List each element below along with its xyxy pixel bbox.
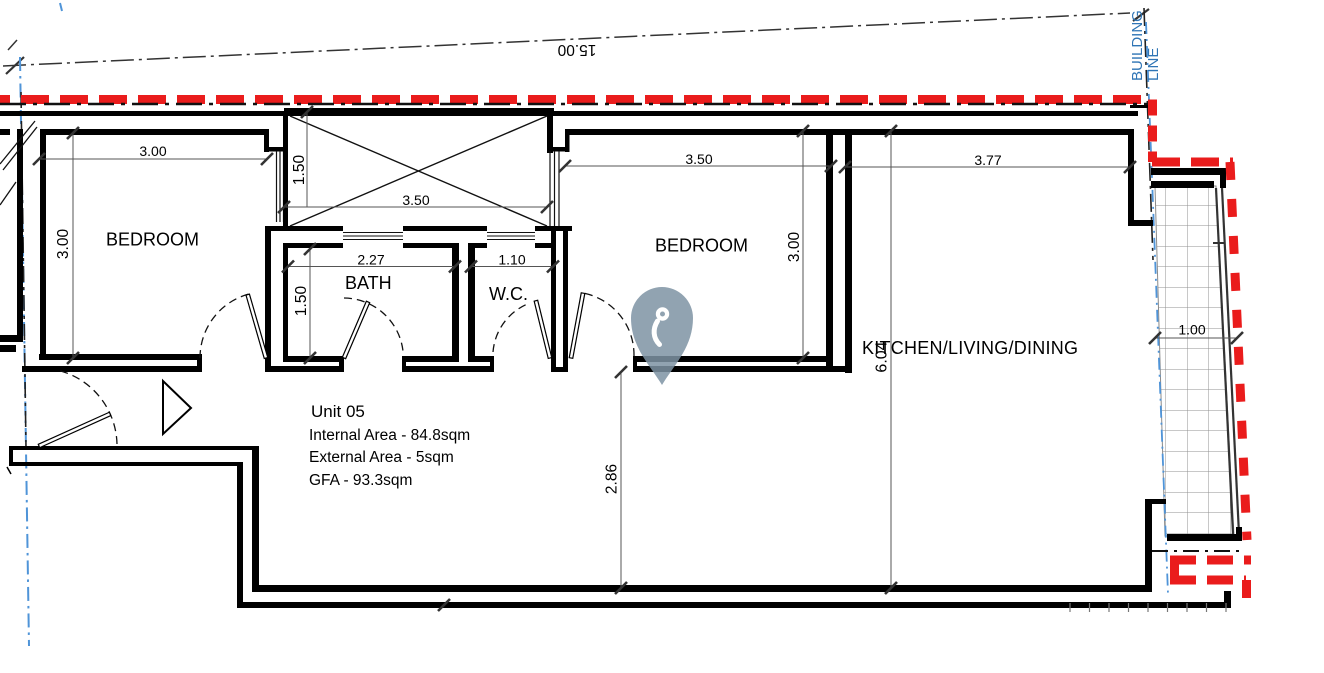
svg-text:6.04: 6.04 (874, 341, 891, 372)
svg-text:3.00: 3.00 (786, 232, 803, 263)
svg-text:3.77: 3.77 (974, 152, 1001, 168)
svg-text:1.10: 1.10 (498, 252, 525, 268)
svg-text:1.50: 1.50 (291, 155, 308, 186)
svg-text:LINE: LINE (1145, 48, 1162, 81)
svg-text:BUILDING: BUILDING (1129, 10, 1146, 81)
svg-text:3.00: 3.00 (139, 143, 166, 159)
svg-text:2.86: 2.86 (604, 464, 621, 494)
svg-text:3.50: 3.50 (402, 192, 429, 208)
svg-text:BEDROOM: BEDROOM (106, 230, 199, 250)
svg-text:Unit 05: Unit 05 (311, 402, 365, 421)
svg-text:External Area - 5sqm: External Area - 5sqm (309, 449, 454, 466)
svg-text:2.27: 2.27 (357, 252, 384, 268)
svg-text:BATH: BATH (345, 273, 392, 293)
svg-text:Internal Area - 84.8sqm: Internal Area - 84.8sqm (309, 427, 470, 444)
svg-text:GFA - 93.3sqm: GFA - 93.3sqm (309, 472, 412, 489)
svg-text:15.00: 15.00 (557, 41, 596, 58)
svg-text:1.00: 1.00 (1178, 322, 1205, 338)
svg-text:3.50: 3.50 (685, 151, 712, 167)
svg-text:1.50: 1.50 (293, 286, 310, 317)
svg-text:KITCHEN/LIVING/DINING: KITCHEN/LIVING/DINING (862, 338, 1078, 358)
svg-text:BEDROOM: BEDROOM (655, 236, 748, 256)
svg-text:3.00: 3.00 (55, 229, 72, 260)
svg-text:W.C.: W.C. (489, 284, 528, 304)
